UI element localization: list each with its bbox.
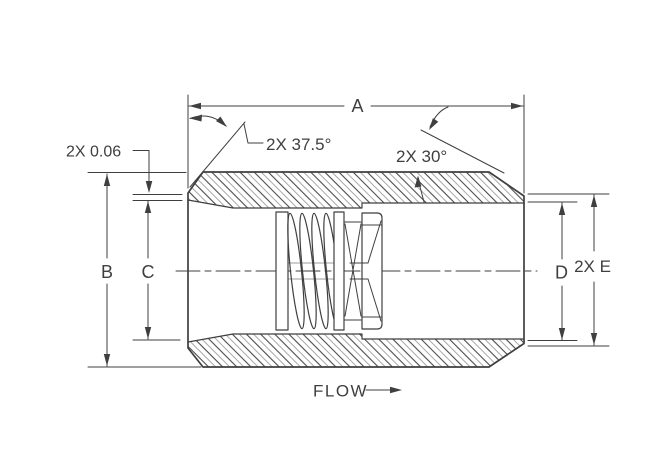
chamfer-front-arc-arrowhead-left: [190, 115, 202, 122]
dim-a-arrowhead-right: [511, 103, 523, 109]
dim-d-arrowhead-top: [559, 203, 565, 215]
face-land-arrowhead: [146, 181, 153, 193]
dim-e-label: 2X E: [574, 257, 611, 276]
chamfer-front-leader: [244, 124, 263, 143]
dim-c-arrowhead-bottom: [145, 327, 151, 339]
dimension-c: C: [133, 201, 180, 340]
chamfer-rear-label: 2X 30°: [396, 147, 447, 166]
dim-b-arrowhead-bottom: [104, 354, 110, 366]
chamfer-front-label: 2X 37.5°: [266, 135, 331, 154]
chamfer-front-arc-arrowhead-right: [216, 117, 227, 128]
check-valve-section-drawing: A 2X 37.5° 2X 30° 2X 0.06 B: [0, 0, 650, 459]
drawing-canvas: A 2X 37.5° 2X 30° 2X 0.06 B: [0, 0, 650, 459]
face-land-label: 2X 0.06: [66, 144, 121, 161]
dim-d-arrowhead-bottom: [559, 328, 565, 340]
dim-b-label: B: [101, 262, 113, 282]
chamfer-rear-leader-arrowhead: [429, 118, 438, 130]
flow-annotation: FLOW: [313, 382, 402, 401]
poppet-cone-section-lines: [345, 224, 361, 316]
poppet-disc: [334, 212, 344, 330]
dim-a-label: A: [351, 96, 363, 116]
dim-e-arrowhead-bottom: [591, 333, 597, 345]
dim-e-arrowhead-top: [591, 195, 597, 207]
face-land-leader: [133, 151, 149, 182]
flow-arrowhead: [390, 387, 402, 394]
dim-d-label: D: [555, 263, 568, 283]
dimension-d: D: [528, 202, 577, 341]
dim-a-arrowhead-left: [189, 103, 201, 109]
dim-c-label: C: [142, 262, 155, 282]
flow-label: FLOW: [313, 382, 368, 401]
spring-retainer: [276, 212, 288, 330]
dimension-e: 2X E: [528, 194, 611, 346]
dim-b-arrowhead-top: [104, 174, 110, 186]
valve-body: [188, 172, 524, 367]
dim-c-arrowhead-top: [145, 201, 151, 213]
seat-insert: [362, 213, 382, 329]
